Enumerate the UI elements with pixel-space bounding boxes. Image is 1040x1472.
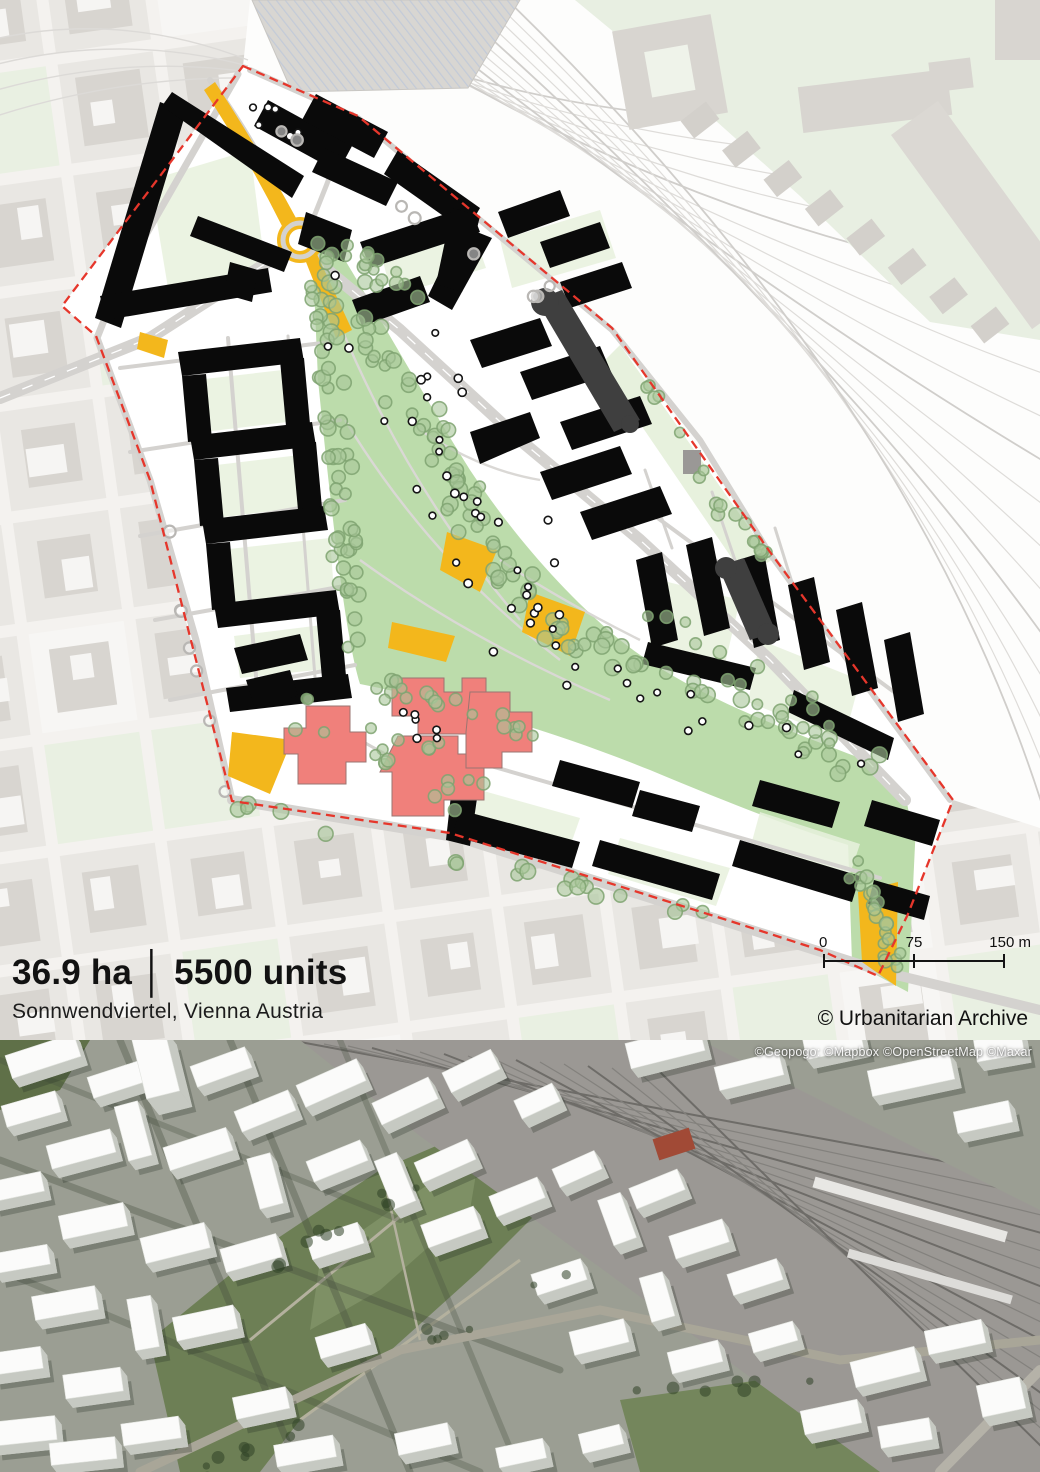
scale-bar-rule xyxy=(823,954,1005,968)
scale-bar: 0 75 150 m xyxy=(823,934,1005,968)
archive-credit: © Urbanitarian Archive xyxy=(818,1007,1028,1031)
aerial-view: ©Geopogo: ©Mapbox ©OpenStreetMap ©Maxar xyxy=(0,1040,1040,1472)
scale-bar-labels: 0 75 150 m xyxy=(823,934,1005,952)
site-stats: 36.9 ha │ 5500 units Sonnwendviertel, Vi… xyxy=(12,953,347,1024)
urban-masterplan-sheet: 36.9 ha │ 5500 units Sonnwendviertel, Vi… xyxy=(0,0,1040,1472)
figure-ground-map xyxy=(0,0,1040,1040)
scale-mid-label: 75 xyxy=(906,934,923,951)
scale-start-label: 0 xyxy=(819,934,827,951)
units-value: 5500 units xyxy=(174,953,347,993)
project-location: Sonnwendviertel, Vienna Austria xyxy=(12,1000,347,1024)
masterplan-map: 36.9 ha │ 5500 units Sonnwendviertel, Vi… xyxy=(0,0,1040,1040)
stats-separator: │ xyxy=(142,950,164,996)
area-value: 36.9 ha xyxy=(12,953,132,993)
stats-headline: 36.9 ha │ 5500 units xyxy=(12,953,347,993)
imagery-attribution: ©Geopogo: ©Mapbox ©OpenStreetMap ©Maxar xyxy=(755,1045,1032,1059)
aerial-photo xyxy=(0,1040,1040,1472)
scale-end-label: 150 m xyxy=(989,934,1031,951)
